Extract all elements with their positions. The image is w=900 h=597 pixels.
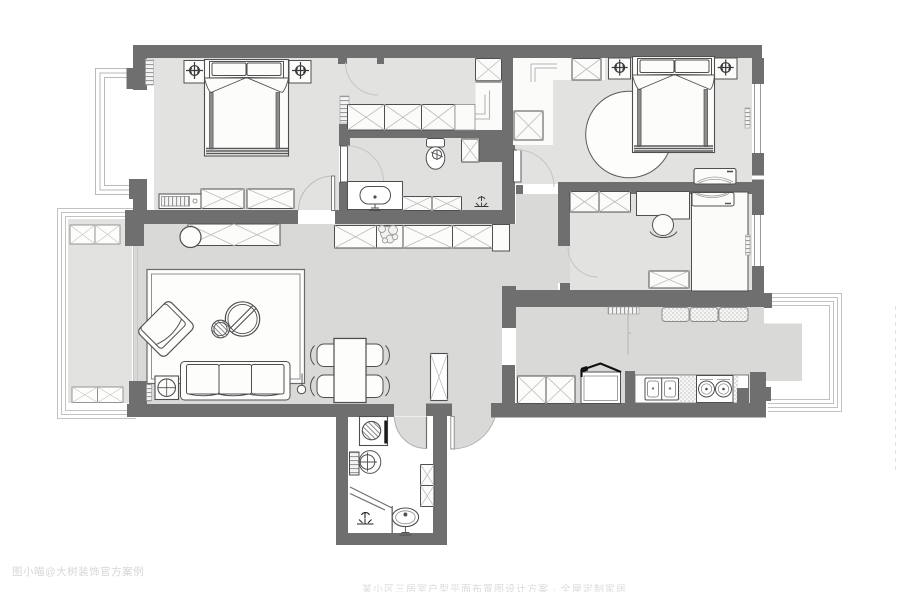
svg-text:某小区三居室户型平面布置图设计方案 · 全屋定制家居: 某小区三居室户型平面布置图设计方案 · 全屋定制家居 <box>362 583 627 593</box>
svg-text:图小喵@大树装饰官方案例: 图小喵@大树装饰官方案例 <box>12 565 144 578</box>
